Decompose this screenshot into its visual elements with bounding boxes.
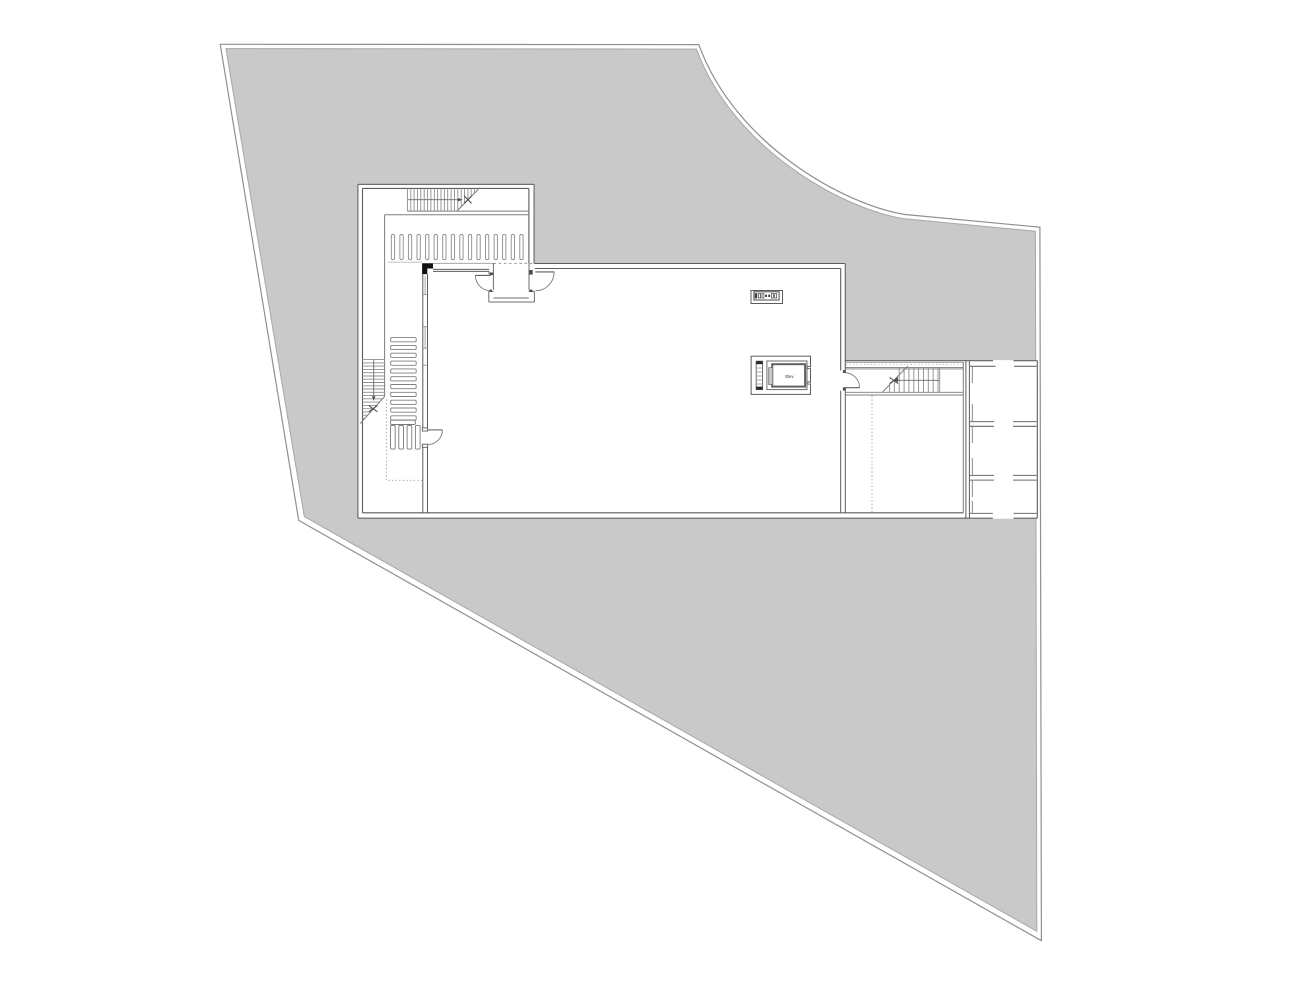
svg-text:Elev: Elev bbox=[785, 374, 794, 379]
